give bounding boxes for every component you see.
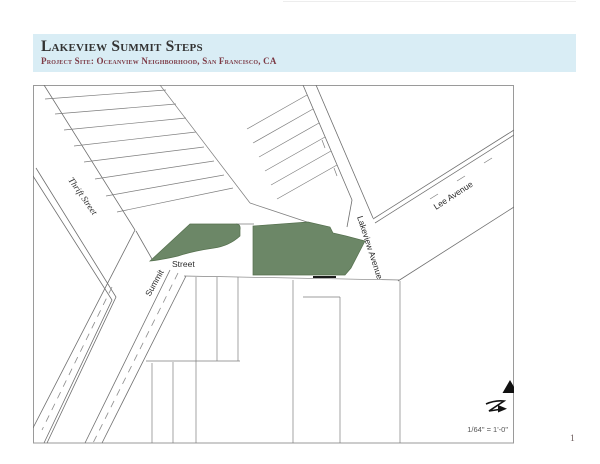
page-top-rule [283, 1, 576, 2]
scale-note: 1/64" = 1'-0" [467, 425, 508, 434]
page-title: Lakeview Summit Steps [41, 38, 576, 55]
summit-street-label-horizontal: Street [172, 259, 195, 269]
page-number: 1 [570, 434, 575, 444]
site-plan-svg: Thrift Street Summit Street Lakeview Ave… [33, 85, 514, 444]
page-subtitle: Project Site: Oceanview Neighborhood, Sa… [41, 56, 576, 66]
site-plan-map: Thrift Street Summit Street Lakeview Ave… [33, 85, 514, 444]
title-block: Lakeview Summit Steps Project Site: Ocea… [33, 34, 576, 72]
